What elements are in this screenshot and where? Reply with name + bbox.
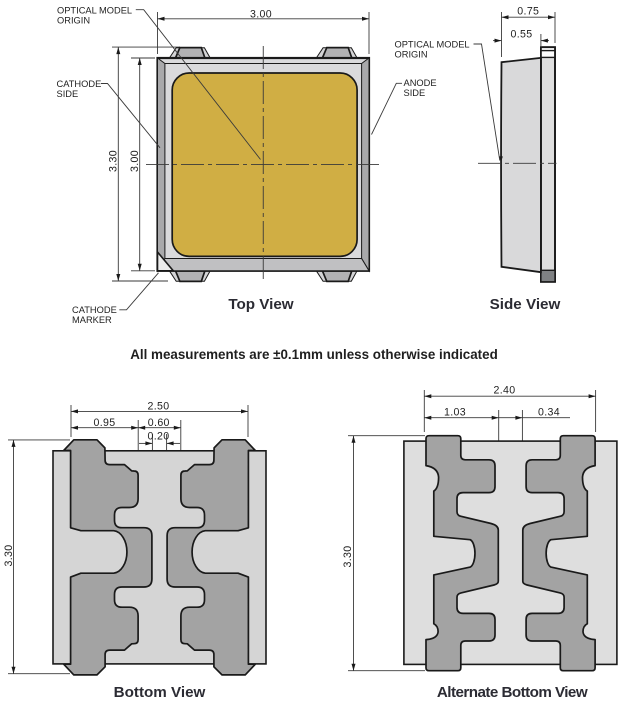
svg-text:OPTICAL MODEL: OPTICAL MODEL — [395, 40, 470, 50]
svg-text:Side View: Side View — [490, 296, 561, 313]
svg-text:MARKER: MARKER — [72, 315, 112, 325]
svg-text:OPTICAL MODEL: OPTICAL MODEL — [57, 5, 132, 15]
svg-text:3.30: 3.30 — [3, 544, 15, 566]
svg-text:2.50: 2.50 — [147, 400, 169, 412]
svg-text:0.20: 0.20 — [147, 431, 169, 443]
svg-text:2.40: 2.40 — [493, 385, 515, 397]
svg-text:3.30: 3.30 — [108, 150, 120, 172]
svg-text:All measurements are ±0.1mm un: All measurements are ±0.1mm unless other… — [130, 347, 498, 362]
svg-text:3.30: 3.30 — [342, 545, 354, 567]
svg-text:ORIGIN: ORIGIN — [57, 15, 90, 25]
svg-text:CATHODE: CATHODE — [57, 79, 102, 89]
svg-text:0.55: 0.55 — [510, 28, 532, 40]
svg-text:1.03: 1.03 — [444, 406, 466, 418]
svg-text:SIDE: SIDE — [404, 88, 426, 98]
svg-text:0.75: 0.75 — [517, 6, 539, 18]
svg-text:Bottom View: Bottom View — [114, 684, 206, 701]
svg-text:3.00: 3.00 — [129, 150, 141, 172]
svg-text:3.00: 3.00 — [250, 8, 272, 20]
svg-text:ANODE: ANODE — [404, 78, 437, 88]
svg-text:0.34: 0.34 — [538, 406, 560, 418]
svg-text:Top View: Top View — [228, 296, 293, 313]
svg-text:ORIGIN: ORIGIN — [395, 50, 428, 60]
svg-text:0.60: 0.60 — [148, 417, 170, 429]
svg-text:Alternate Bottom View: Alternate Bottom View — [437, 684, 588, 701]
svg-text:CATHODE: CATHODE — [72, 305, 117, 315]
svg-text:0.95: 0.95 — [93, 417, 115, 429]
svg-text:SIDE: SIDE — [57, 89, 79, 99]
